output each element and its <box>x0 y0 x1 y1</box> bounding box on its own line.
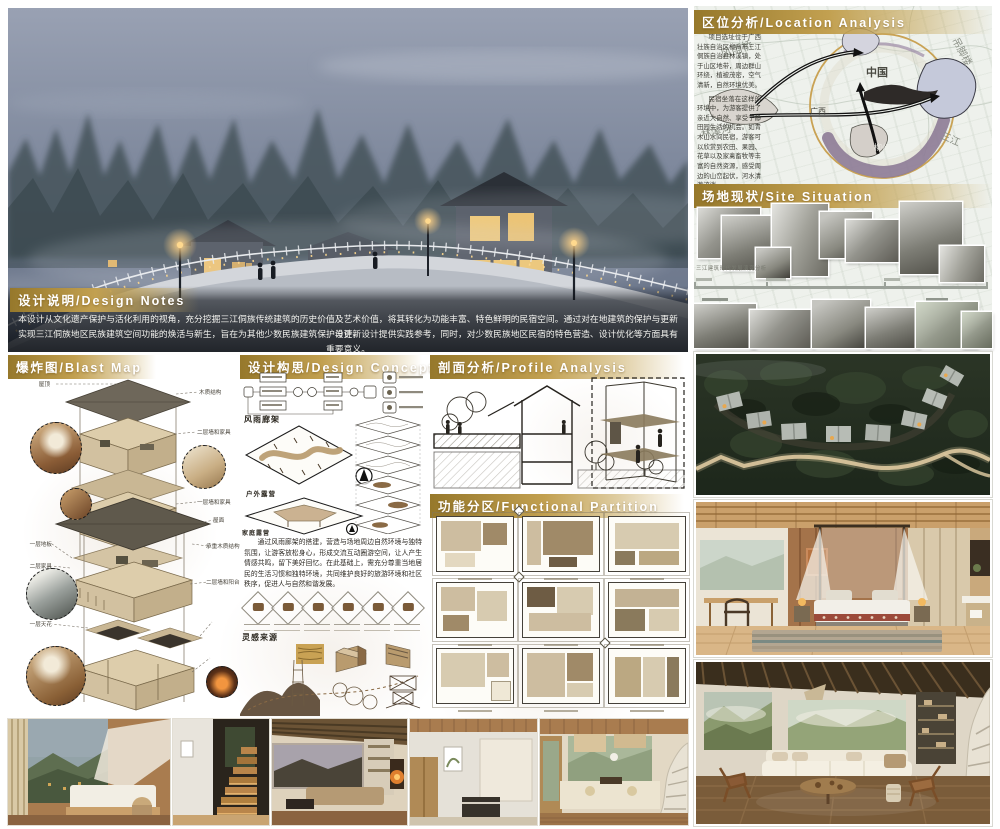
activity-diamond-icon <box>331 591 365 625</box>
site-photo <box>812 300 870 348</box>
callout-window-photo <box>26 568 78 620</box>
bedroom-render <box>694 500 992 657</box>
timeline-tick-label <box>696 278 712 281</box>
icon-caption <box>364 624 390 631</box>
activity-diamond-icon <box>391 591 425 625</box>
site-collage: 三江建筑时代发展演变分析 <box>694 202 992 348</box>
design-notes-line2: 实现三江侗族地区民族建筑空间功能的焕活与新生，旨在为其他少数民族建筑保护与更新设… <box>8 327 688 352</box>
location-title: 区位分析/Location Analysis <box>694 10 992 34</box>
floor-plan <box>522 582 600 638</box>
layered-stack-diagram <box>352 414 424 534</box>
icon-caption <box>334 624 360 631</box>
icon-caption <box>244 624 270 631</box>
icon-caption <box>304 624 330 631</box>
callout-bedroom-photo <box>30 422 82 474</box>
photo-tea-room <box>540 719 688 825</box>
inspiration-sketches <box>240 642 426 716</box>
floor-plan <box>436 582 514 638</box>
map-word: 中国 <box>866 65 888 79</box>
floor-plan <box>436 648 514 704</box>
floor-plan <box>522 648 600 704</box>
section-drawing <box>430 372 688 492</box>
blast-label: 一层墙和家具 <box>197 498 231 506</box>
floor-plan <box>608 516 686 572</box>
floor-plan <box>608 648 686 704</box>
activity-diamond-icon <box>241 591 275 625</box>
site-photo <box>756 248 790 278</box>
blast-label: 一层天花 <box>8 620 52 628</box>
timeline-tick-label <box>766 278 786 281</box>
activity-diamond-icon <box>271 591 305 625</box>
timeline-note <box>926 298 948 301</box>
icon-caption <box>274 624 300 631</box>
map-word: 柳州 <box>874 142 890 152</box>
floorplan-grid <box>430 512 690 712</box>
blast-label: 木质结构 <box>199 388 221 396</box>
concept-paragraph: 通过风雨廊架的搭建，营造与场地周边自然环境与独特氛围，让游客放松身心，形成交流互… <box>244 538 422 588</box>
callout-nook-photo <box>60 488 92 520</box>
concept-legend <box>382 370 424 416</box>
timeline-note <box>702 298 728 301</box>
activity-diamond-icon <box>361 591 395 625</box>
location-text: 项目选址位于广西壮族自治区柳州市三江侗族自治县林溪镇，处于山区地带，周边群山环绕… <box>697 33 761 195</box>
timeline-tick <box>766 282 768 289</box>
icon-caption <box>394 624 420 631</box>
photo-white-room <box>410 719 537 825</box>
activity-diamond-icon <box>301 591 335 625</box>
site-photo <box>750 310 814 348</box>
blast-label: 二层墙和阳台 <box>206 578 240 586</box>
concept-flowchart <box>242 370 378 416</box>
blast-label: 一层地板 <box>8 540 52 548</box>
timeline-tick <box>986 282 988 289</box>
site-photo <box>866 308 920 348</box>
timeline-caption: 三江建筑时代发展演变分析 <box>696 264 767 272</box>
photo-living-fireplace <box>272 719 407 825</box>
location-paragraph-2: 民宿坐落在这样的环境中，为游客提供了亲近大自然、享受宁静田园生活的机会。如青木山… <box>697 95 761 191</box>
location-paragraph-1: 项目选址位于广西壮族自治区柳州市三江侗族自治县林溪镇，处于山区地带，周边群山环绕… <box>697 33 761 91</box>
blast-label: 二层墙和家具 <box>197 428 231 436</box>
map-word: 广西 <box>810 106 826 116</box>
callout-tearoom-photo <box>26 646 86 706</box>
floor-plan <box>436 516 514 572</box>
floor-plan <box>608 582 686 638</box>
livingroom-render <box>694 660 992 826</box>
timeline-tick-label <box>884 278 900 281</box>
design-notes-title: 设计说明/Design Notes <box>10 288 199 312</box>
callout-interior-photo <box>182 445 226 489</box>
poster: 设计说明/Design Notes 本设计从文化遗产保护与活化利用的视角，充分挖… <box>0 0 1000 829</box>
timeline-tick <box>694 282 696 289</box>
aerial-render <box>694 352 992 497</box>
callout-fireplace-photo <box>206 666 238 698</box>
site-photo <box>940 246 984 282</box>
timeline-tick <box>884 282 886 289</box>
design-notes-panel: 设计说明/Design Notes 本设计从文化遗产保护与活化利用的视角，充分挖… <box>8 286 688 352</box>
photo-bedroom-view <box>8 719 170 825</box>
blast-label: 屋顶 <box>6 380 50 388</box>
family-camp-label: 家庭露营 <box>242 528 270 537</box>
site-photo <box>694 304 756 348</box>
timeline-bar <box>694 286 988 289</box>
blast-label: 屋面 <box>213 516 224 524</box>
photo-staircase <box>173 719 269 825</box>
site-photo <box>962 312 992 348</box>
floor-plan <box>522 516 600 572</box>
hero-render: 设计说明/Design Notes 本设计从文化遗产保护与活化利用的视角，充分挖… <box>8 8 688 352</box>
blast-label: 承重木质结构 <box>206 542 240 550</box>
site-photo <box>846 220 902 262</box>
